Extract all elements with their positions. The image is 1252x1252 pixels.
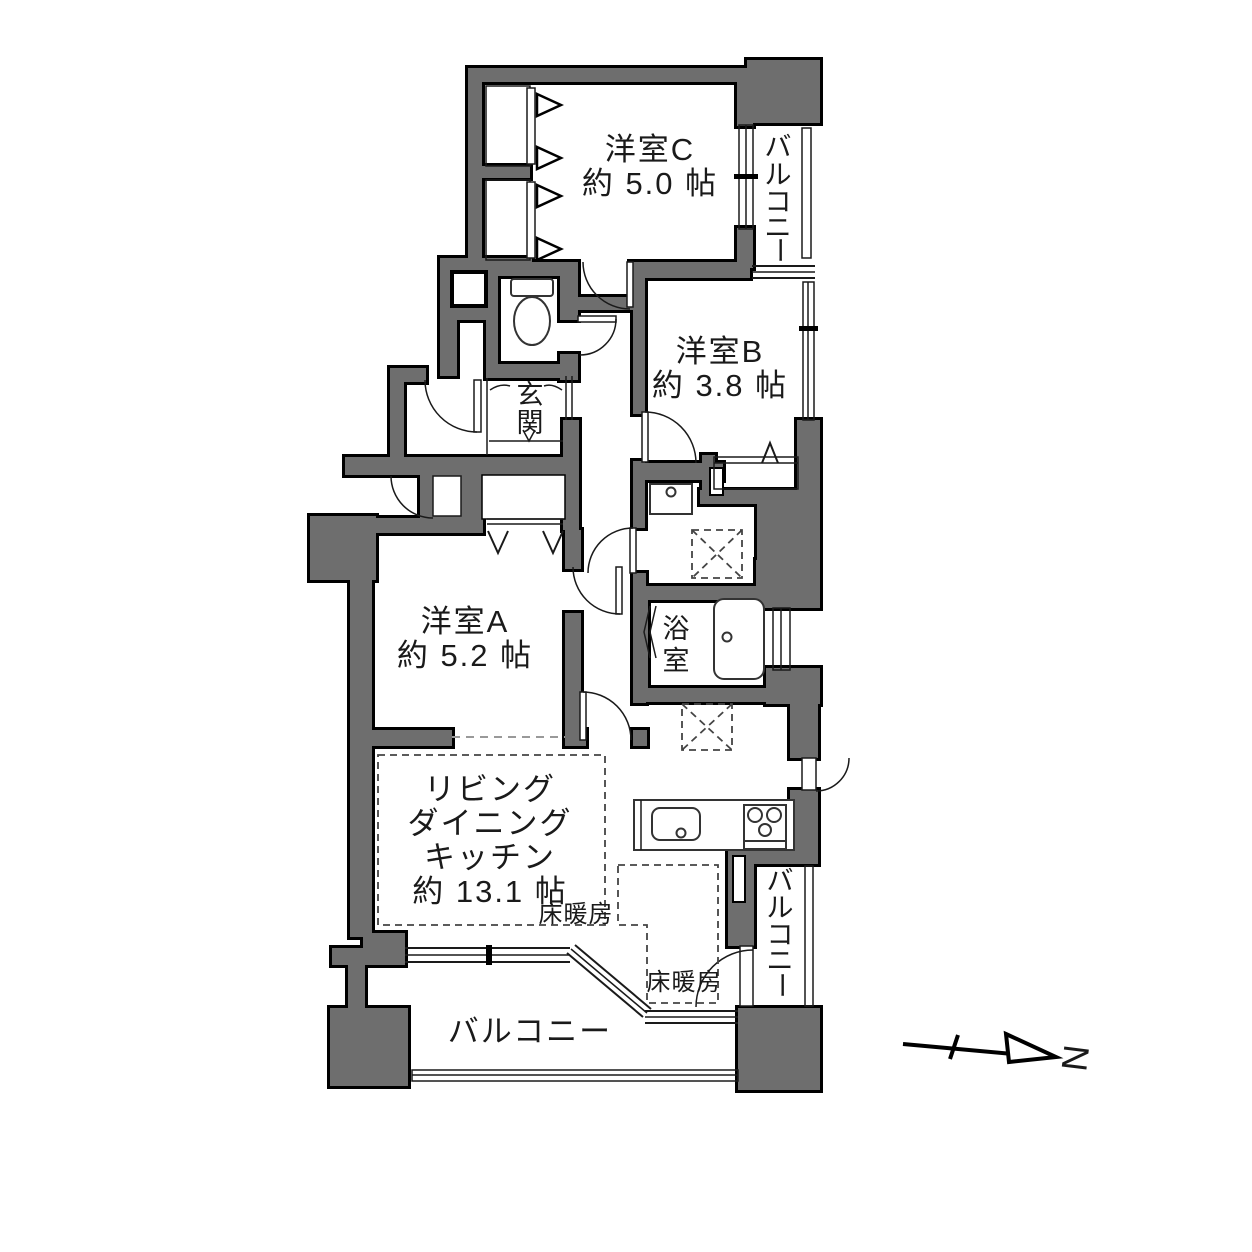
svg-text:ル: ル [765,160,792,190]
balcony-top-railing [802,128,811,258]
stove [744,805,786,849]
kitchen-counter [634,800,794,850]
ldk-label: リビング ダイニング キッチン 約 13.1 帖 [408,772,573,909]
room-b-label: 洋室B 約 3.8 帖 [652,334,788,403]
pipe-shaft-box [452,272,486,306]
svg-text:玄: 玄 [517,380,544,410]
fridge-space [682,704,732,750]
svg-text:関: 関 [517,408,544,438]
svg-text:ー: ー [764,237,794,264]
balcony-right-railing [805,866,813,1006]
toilet-fixture [511,279,553,345]
svg-text:ー: ー [766,972,796,999]
closet-room-b [714,443,798,489]
floor-heating-kitchen-label: 床暖房 [647,969,722,996]
genkan-label: 玄 関 [517,380,544,438]
hanger-v-mark [543,531,563,553]
svg-text:バ: バ [767,866,794,896]
hanger-marks [537,94,561,260]
room-a-label: 洋室A 約 5.2 帖 [397,604,533,673]
balcony-top-label: バ ル コ ニ ー [764,132,794,264]
bath-label: 浴 室 [663,614,690,676]
svg-text:浴: 浴 [663,614,690,644]
compass: N [903,1034,1097,1073]
svg-text:洋室A: 洋室A [421,604,510,639]
svg-text:洋室B: 洋室B [676,334,765,369]
walls-fill [310,60,820,1090]
svg-text:約 5.2 帖: 約 5.2 帖 [397,638,533,673]
hanger-v-mark [762,443,778,463]
svg-text:キッチン: キッチン [424,840,556,875]
balcony-right-label: バ ル コ ニ ー [766,866,796,999]
svg-text:約 5.0 帖: 約 5.0 帖 [582,166,718,201]
svg-text:約 3.8 帖: 約 3.8 帖 [652,368,788,403]
svg-text:室: 室 [663,646,690,676]
floorplan-drawing: 洋室C 約 5.0 帖 洋室B 約 3.8 帖 洋室A 約 5.2 帖 リビング… [0,0,1252,1252]
washbasin [650,484,692,514]
svg-text:洋室C: 洋室C [605,132,695,167]
svg-text:ダイニング: ダイニング [408,806,573,841]
svg-text:ル: ル [767,893,794,923]
washer-space [692,530,742,578]
hanger-v-mark [488,531,508,553]
floor-heating-living-label: 床暖房 [539,901,614,928]
svg-text:リビング: リビング [424,772,556,807]
room-c-label: 洋室C 約 5.0 帖 [582,132,718,201]
floorplan-page: 洋室C 約 5.0 帖 洋室B 約 3.8 帖 洋室A 約 5.2 帖 リビング… [0,0,1252,1252]
duct-niche [710,468,723,495]
compass-arrowhead [1006,1034,1056,1062]
bathtub [714,599,764,679]
svg-text:バ: バ [765,132,792,162]
compass-north-label: N [1054,1043,1098,1074]
balcony-bottom-label: バルコニー [448,1014,612,1049]
closet-room-a [482,475,565,553]
